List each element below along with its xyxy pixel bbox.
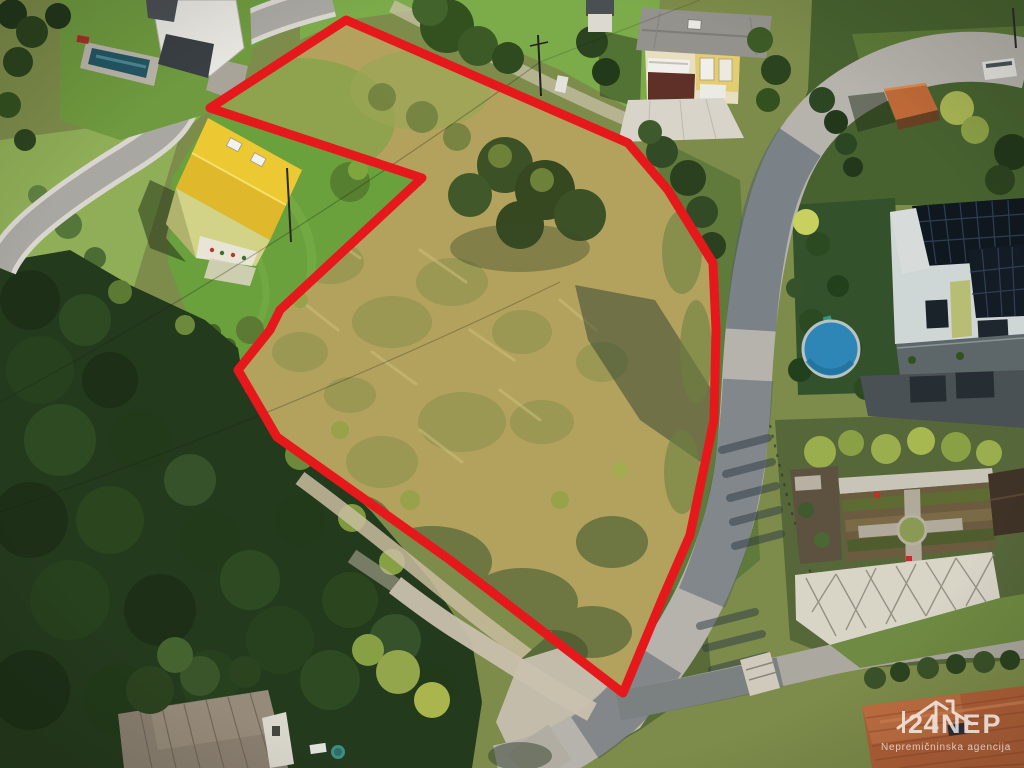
watermark-name: NEP <box>941 709 1003 739</box>
watermark-tagline: Nepremičninska agencija <box>881 742 1011 753</box>
vignette <box>0 0 1024 768</box>
watermark-number: 24 <box>908 709 939 739</box>
logo-bar <box>902 711 905 733</box>
aerial-photo: 24 NEP Nepremičninska agencija <box>0 0 1024 768</box>
